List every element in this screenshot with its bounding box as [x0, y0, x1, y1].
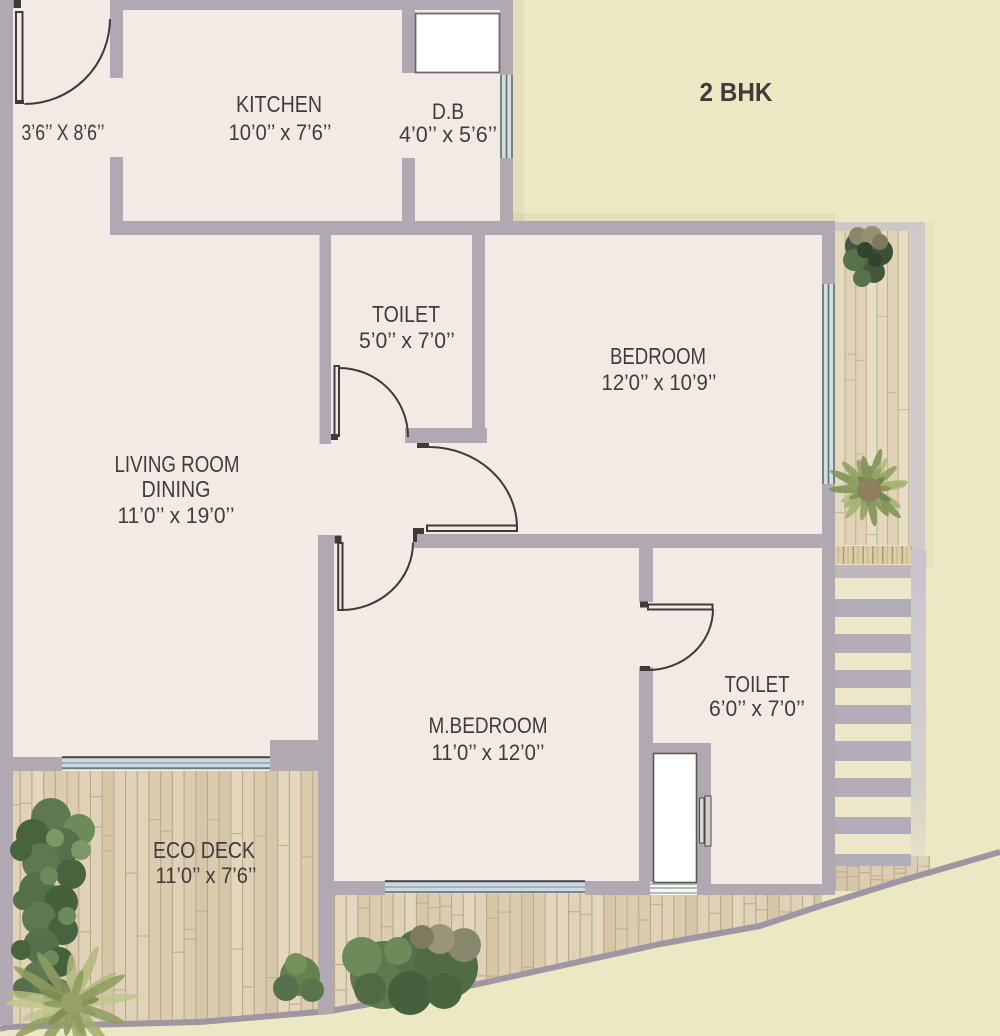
svg-text:11’0’’ x 19’0’’: 11’0’’ x 19’0’’	[118, 503, 235, 528]
svg-text:12’0’’ x 10’9’’: 12’0’’ x 10’9’’	[602, 370, 717, 395]
svg-text:3’6’’ X 8’6’’: 3’6’’ X 8’6’’	[22, 120, 105, 145]
svg-text:11’0’’ x 7’6’’: 11’0’’ x 7’6’’	[156, 863, 257, 888]
svg-text:2 BHK: 2 BHK	[700, 77, 773, 107]
svg-text:DINING: DINING	[142, 476, 211, 502]
svg-text:TOILET: TOILET	[725, 671, 790, 697]
svg-text:D.B: D.B	[432, 99, 464, 124]
svg-text:TOILET: TOILET	[372, 301, 440, 327]
svg-text:6’0’’ x 7’0’’: 6’0’’ x 7’0’’	[709, 696, 805, 721]
svg-text:5’0’’ x 7’0’’: 5’0’’ x 7’0’’	[359, 328, 455, 353]
svg-text:KITCHEN: KITCHEN	[236, 91, 322, 117]
svg-text:11’0’’ x 12’0’’: 11’0’’ x 12’0’’	[432, 740, 545, 765]
svg-text:4’0’’ x 5’6’’: 4’0’’ x 5’6’’	[399, 122, 497, 147]
svg-text:ECO DECK: ECO DECK	[153, 837, 256, 863]
svg-text:10’0’’ x 7’6’’: 10’0’’ x 7’6’’	[229, 120, 332, 145]
svg-text:BEDROOM: BEDROOM	[610, 343, 706, 369]
svg-text:M.BEDROOM: M.BEDROOM	[429, 713, 548, 738]
svg-text:LIVING ROOM: LIVING ROOM	[115, 451, 240, 477]
